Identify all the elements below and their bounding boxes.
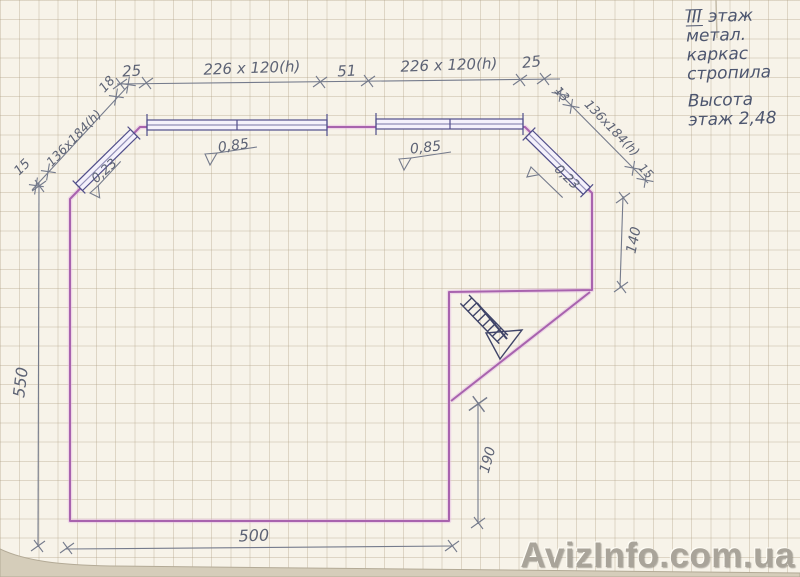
stair-symbol xyxy=(460,295,522,359)
dim-top-right-offset: 25 xyxy=(521,52,542,72)
dim-right-wall: 140 xyxy=(623,225,644,255)
watermark: AvizInfo.com.ua xyxy=(520,536,795,576)
stair-down-arrow-shaft xyxy=(477,303,507,339)
dim-right-chamfer-start: 13 xyxy=(552,84,573,105)
note-floor-word: этаж xyxy=(702,6,753,27)
dim-top-window-right: 226 x 120(h) xyxy=(400,54,497,75)
room-outline xyxy=(70,127,592,521)
window-top-right xyxy=(376,113,523,135)
note-height-value: этаж 2,48 xyxy=(688,109,800,131)
level-value-left-chamfer: 0,23 xyxy=(89,156,121,187)
window-top-left xyxy=(147,114,327,136)
dim-top-left-offset: 25 xyxy=(121,61,141,80)
dim-left-chamfer-end: 18 xyxy=(96,73,118,95)
floor-plan-drawing: 25 226 x 120(h) 51 226 x 120(h) 25 15 13… xyxy=(0,0,800,577)
dim-bottom-wall: 500 xyxy=(238,525,269,545)
dim-left-chamfer-window: 136x184(h) xyxy=(43,106,104,169)
dim-top-window-left: 226 x 120(h) xyxy=(203,57,300,78)
room-perimeter xyxy=(70,127,592,521)
level-value-top-left: 0,85 xyxy=(217,136,250,156)
dim-line-right-wall xyxy=(620,196,623,288)
dim-top-pier: 51 xyxy=(337,62,357,81)
dim-line-bottom xyxy=(66,546,453,549)
dim-stair-opening: 190 xyxy=(477,445,499,475)
dim-line-left-wall xyxy=(38,182,39,547)
room-outline-glow xyxy=(70,127,592,521)
note-rafters: стропила xyxy=(687,63,799,85)
handwritten-notes: III этаж метал. каркас стропила Высота э… xyxy=(685,6,800,131)
scanned-sketch-page: 25 226 x 120(h) 51 226 x 120(h) 25 15 13… xyxy=(0,0,800,577)
level-marks xyxy=(88,147,563,205)
stair-ladder xyxy=(460,295,508,344)
note-floor-roman: III xyxy=(685,9,702,26)
dim-left-wall: 550 xyxy=(9,366,32,399)
dim-left-chamfer-start: 15 xyxy=(11,156,33,178)
level-value-top-right: 0,85 xyxy=(409,138,442,157)
window-right-chamfer xyxy=(523,128,593,198)
dim-right-chamfer-window: 136x184(h) xyxy=(582,96,643,159)
